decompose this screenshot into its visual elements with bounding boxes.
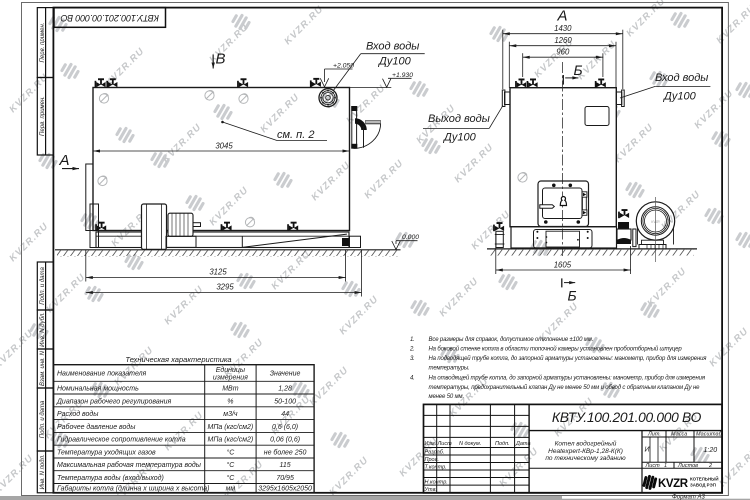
svg-text:Дата: Дата [515, 441, 531, 447]
svg-text:КВТУ.100.201.00.000 ВО: КВТУ.100.201.00.000 ВО [552, 410, 702, 425]
svg-text:Heatexpert-КВр-1,28-К(К): Heatexpert-КВр-1,28-К(К) [548, 448, 623, 455]
svg-text:3.: 3. [410, 356, 415, 362]
svg-text:Подп.: Подп. [495, 441, 510, 447]
svg-text:Взам. инв. N: Взам. инв. N [40, 350, 46, 386]
svg-text:Диапазон рабочего регулировани: Диапазон рабочего регулирования [56, 397, 172, 405]
svg-text:м3/ч: м3/ч [223, 411, 238, 418]
svg-text:менее 50 мм.: менее 50 мм. [429, 394, 465, 400]
svg-text:мм: мм [226, 486, 236, 493]
svg-text:ЗАВОД РЭП: ЗАВОД РЭП [690, 483, 716, 488]
svg-text:Лист: Лист [437, 441, 453, 447]
svg-text:КВТУ.100.201.00.000 ВО: КВТУ.100.201.00.000 ВО [60, 13, 158, 23]
svg-text:0,06 (0,6): 0,06 (0,6) [270, 437, 300, 444]
svg-text:Утв.: Утв. [424, 487, 438, 493]
svg-text:МВт: МВт [222, 386, 239, 393]
svg-text:На подводящей трубе котла, до: На подводящей трубе котла, до запорной а… [429, 355, 708, 362]
svg-text:1260: 1260 [554, 36, 572, 45]
svg-text:1605: 1605 [554, 260, 572, 269]
svg-text:1: 1 [664, 463, 667, 469]
svg-text:Масса: Масса [671, 432, 687, 438]
svg-text:температуры, предохранительный: температуры, предохранительный клапан Ду… [429, 384, 701, 391]
svg-text:Пров.: Пров. [425, 457, 440, 463]
svg-text:Подп. и дата: Подп. и дата [40, 400, 46, 438]
svg-text:Инв. N подл.: Инв. N подл. [40, 454, 46, 489]
svg-text:Ду100: Ду100 [442, 132, 477, 144]
svg-text:%: % [227, 398, 233, 405]
svg-text:N докум.: N докум. [459, 441, 481, 447]
svg-text:Расход воды: Расход воды [57, 410, 99, 418]
svg-text:На боковой стенке котла в обла: На боковой стенке котла в области топочн… [429, 346, 683, 353]
svg-text:Перв. примен.: Перв. примен. [40, 23, 46, 63]
svg-text:Листов: Листов [677, 463, 698, 469]
svg-text:КОТЕЛЬНЫЙ: КОТЕЛЬНЫЙ [690, 477, 719, 482]
svg-text:1:20: 1:20 [704, 447, 718, 454]
svg-text:А: А [557, 8, 568, 25]
svg-text:1430: 1430 [554, 24, 572, 33]
svg-text:МПа (кгс/см2): МПа (кгс/см2) [208, 424, 254, 431]
svg-text:Значение: Значение [270, 371, 301, 378]
svg-text:МПа (кгс/см2): МПа (кгс/см2) [208, 437, 254, 444]
svg-text:2: 2 [708, 463, 712, 469]
svg-text:по техническому заданию: по техническому заданию [545, 454, 625, 462]
svg-text:Габариты котла (длинна х ширин: Габариты котла (длинна х ширина х высота… [57, 485, 210, 493]
svg-text:Единицы: Единицы [216, 366, 246, 374]
svg-text:1,28: 1,28 [278, 386, 292, 393]
svg-text:Гидравлическое сопротивление к: Гидравлическое сопротивление котла [57, 436, 186, 444]
svg-text:Температура уходящих газов: Температура уходящих газов [57, 449, 156, 457]
svg-text:Вход воды: Вход воды [655, 72, 708, 84]
svg-text:Изм.: Изм. [425, 441, 437, 447]
svg-text:KVZR: KVZR [658, 478, 689, 490]
svg-text:Температура воды (вход/выход): Температура воды (вход/выход) [57, 474, 164, 482]
svg-text:Вход воды: Вход воды [366, 41, 419, 53]
svg-text:115: 115 [280, 462, 291, 469]
svg-text:0,6 (6,0): 0,6 (6,0) [272, 424, 298, 431]
svg-text:Лист: Лист [645, 463, 661, 469]
svg-text:В: В [216, 51, 226, 68]
svg-text:2.: 2. [409, 347, 415, 353]
svg-text:Б: Б [574, 62, 583, 78]
svg-text:На отводящей трубе котла, до з: На отводящей трубе котла, до запорной ар… [429, 374, 706, 381]
svg-text:Формат А3: Формат А3 [672, 494, 705, 500]
svg-text:°С: °С [226, 449, 235, 457]
svg-text:Максимальная рабочая температу: Максимальная рабочая температура воды [57, 461, 202, 469]
svg-text:3045: 3045 [215, 141, 233, 150]
svg-text:Разраб.: Разраб. [425, 450, 445, 456]
svg-text:3295: 3295 [216, 283, 234, 292]
svg-text:А: А [59, 152, 70, 169]
svg-text:4.: 4. [410, 375, 415, 381]
svg-text:Котел водогрейный: Котел водогрейный [555, 440, 617, 448]
svg-text:Инв. N дубл.: Инв. N дубл. [40, 312, 46, 347]
svg-text:°С: °С [226, 474, 235, 482]
svg-text:44: 44 [281, 411, 289, 418]
svg-text:Перв. примен.: Перв. примен. [40, 96, 46, 136]
svg-text:Т.контр.: Т.контр. [425, 465, 447, 471]
svg-text:Масштаб: Масштаб [696, 432, 723, 438]
svg-text:не более 250: не более 250 [264, 449, 307, 457]
svg-text:Номинальная мощность: Номинальная мощность [57, 386, 139, 393]
svg-text:3125: 3125 [209, 268, 227, 277]
svg-text:70/95: 70/95 [276, 475, 294, 482]
svg-text:Ду100: Ду100 [377, 56, 412, 68]
svg-text:температуры.: температуры. [429, 366, 470, 372]
svg-text:Рабочее давление воды: Рабочее давление воды [57, 423, 136, 431]
svg-text:измерения: измерения [213, 375, 248, 382]
svg-text:Н.контр.: Н.контр. [425, 480, 448, 486]
svg-text:Б: Б [568, 288, 577, 304]
svg-text:Ду100: Ду100 [662, 91, 697, 103]
svg-text:0.000: 0.000 [402, 234, 419, 241]
svg-text:Подп. и дата: Подп. и дата [40, 267, 46, 305]
svg-text:3295х1605х2050: 3295х1605х2050 [258, 486, 312, 493]
svg-text:°С: °С [226, 461, 235, 469]
svg-text:Все размеры для справок, допус: Все размеры для справок, допустимое откл… [429, 337, 594, 343]
svg-text:960: 960 [556, 48, 570, 57]
svg-text:50-100: 50-100 [274, 398, 296, 405]
svg-text:Выход воды: Выход воды [428, 113, 490, 125]
svg-text:см. п. 2: см. п. 2 [277, 129, 314, 141]
svg-text:1.: 1. [410, 337, 415, 343]
svg-text:Наименование показателя: Наименование показателя [57, 371, 147, 378]
svg-text:Лит.: Лит. [647, 432, 661, 438]
svg-text:Техническая характеристика: Техническая характеристика [125, 355, 231, 364]
